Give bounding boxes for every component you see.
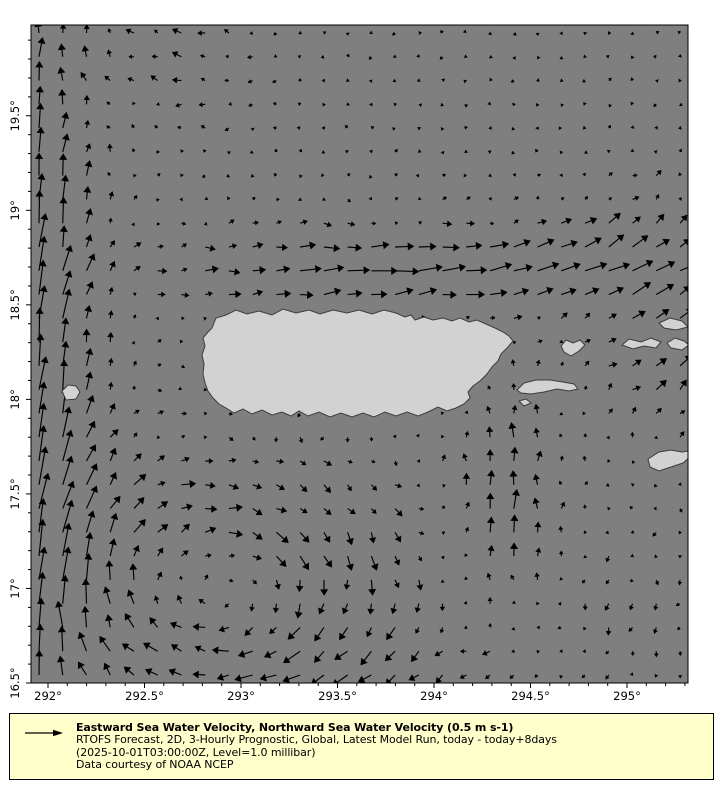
legend-box: Eastward Sea Water Velocity, Northward S… xyxy=(9,713,714,780)
legend-text-block: Eastward Sea Water Velocity, Northward S… xyxy=(76,722,557,772)
y-axis: 19.5°19°18.5°18°17.5°17°16.5° xyxy=(8,40,31,699)
x-axis: 292°292.5°293°293.5°294°294.5°295° xyxy=(34,683,685,703)
y-tick-label: 17° xyxy=(8,578,22,598)
x-tick-label: 294° xyxy=(420,689,448,703)
x-tick-label: 292° xyxy=(34,689,62,703)
x-tick-label: 295° xyxy=(613,689,641,703)
y-tick-label: 18.5° xyxy=(8,289,22,320)
x-tick-label: 294.5° xyxy=(511,689,550,703)
y-tick-label: 19.5° xyxy=(8,100,22,131)
y-tick-label: 19° xyxy=(8,200,22,220)
reference-velocity-arrow-icon xyxy=(24,728,64,738)
y-tick-label: 18° xyxy=(8,389,22,409)
x-tick-label: 292.5° xyxy=(125,689,164,703)
y-tick-label: 16.5° xyxy=(8,667,22,698)
quiver-map-canvas: 292°292.5°293°293.5°294°294.5°295°19.5°1… xyxy=(0,0,720,800)
x-tick-label: 293° xyxy=(227,689,255,703)
legend-credit-line: Data courtesy of NOAA NCEP xyxy=(76,759,557,771)
legend-source-line: RTOFS Forecast, 2D, 3-Hourly Prognostic,… xyxy=(76,734,557,746)
island-puerto-rico xyxy=(202,309,513,417)
y-tick-label: 17.5° xyxy=(8,478,22,509)
quiver-figure: 292°292.5°293°293.5°294°294.5°295°19.5°1… xyxy=(0,0,720,800)
x-tick-label: 293.5° xyxy=(318,689,357,703)
